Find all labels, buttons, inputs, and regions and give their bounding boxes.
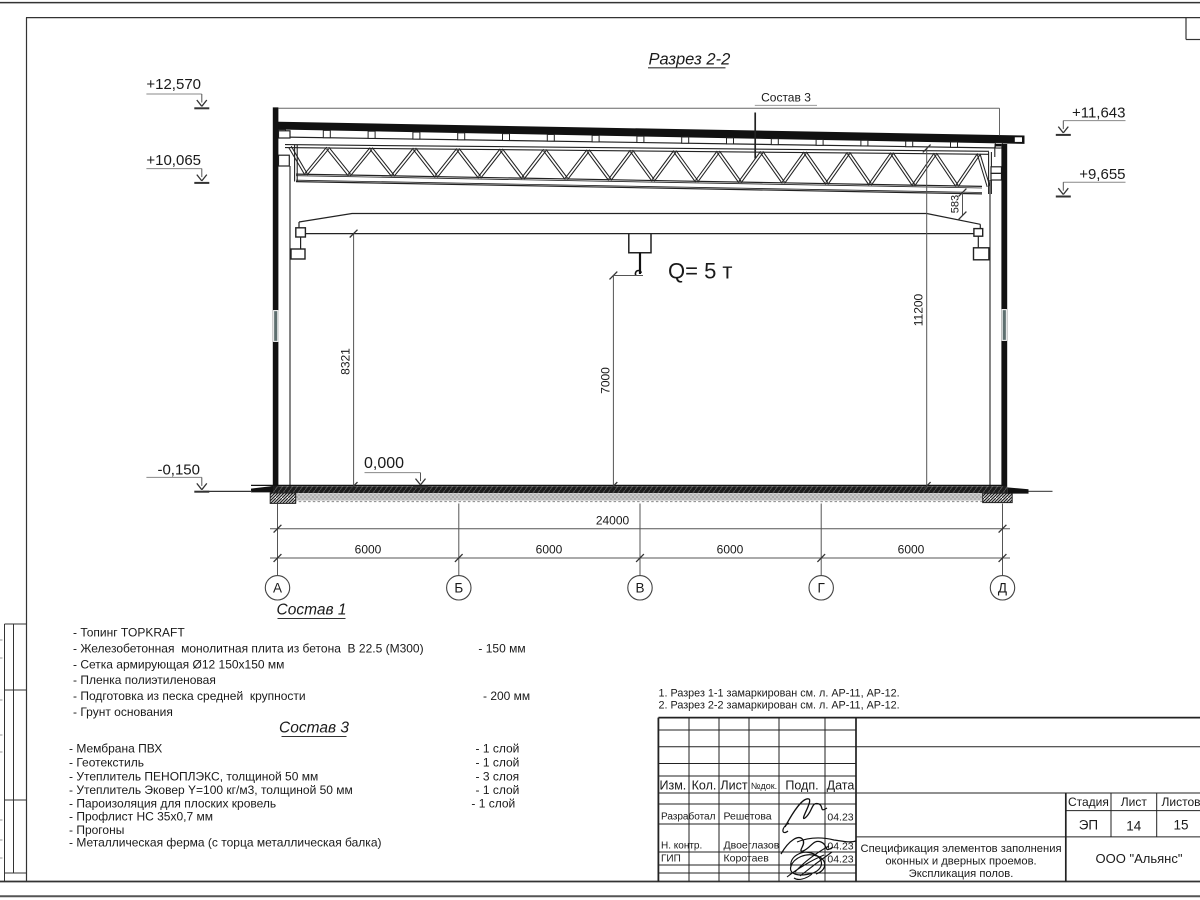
- svg-text:Q= 5 т: Q= 5 т: [668, 259, 733, 284]
- svg-text:- Профлист НС 35x0,7 мм: - Профлист НС 35x0,7 мм: [69, 810, 213, 824]
- svg-text:+9,655: +9,655: [1079, 166, 1125, 183]
- svg-text:0,000: 0,000: [364, 455, 404, 472]
- svg-text:А: А: [273, 580, 282, 595]
- svg-text:Коротаев: Коротаев: [724, 853, 770, 865]
- svg-text:6000: 6000: [717, 543, 744, 557]
- svg-text:ЭП: ЭП: [1079, 818, 1098, 833]
- svg-text:- Утеплитель ПЕНОПЛЭКС, толщин: - Утеплитель ПЕНОПЛЭКС, толщиной 50 мм: [69, 770, 318, 784]
- svg-text:Лист: Лист: [720, 779, 747, 793]
- svg-text:8321: 8321: [339, 348, 353, 375]
- svg-text:Н. контр.: Н. контр.: [661, 841, 702, 852]
- svg-text:- Подготовка из песка средней: - Подготовка из песка средней крупности: [73, 689, 306, 703]
- svg-text:ООО "Альянс": ООО "Альянс": [1096, 851, 1183, 866]
- svg-text:6000: 6000: [536, 543, 563, 557]
- svg-text:- Топинг TOPKRAFT: - Топинг TOPKRAFT: [73, 626, 185, 640]
- svg-text:Листов: Листов: [1162, 795, 1200, 809]
- svg-text:-0,150: -0,150: [157, 462, 200, 479]
- svg-text:Изм.: Изм.: [660, 779, 687, 793]
- svg-text:14: 14: [1126, 819, 1142, 834]
- svg-text:1. Разрез 1-1 замаркирован см.: 1. Разрез 1-1 замаркирован см. л. АР-11,…: [659, 688, 900, 700]
- svg-text:Двоеглазов: Двоеглазов: [724, 840, 780, 852]
- svg-text:- Пленка полиэтиленовая: - Пленка полиэтиленовая: [73, 673, 216, 687]
- svg-text:Лист: Лист: [1121, 795, 1148, 809]
- svg-text:Разработал: Разработал: [661, 811, 716, 823]
- svg-text:Дата: Дата: [827, 779, 855, 793]
- svg-text:- 1 слой: - 1 слой: [476, 783, 520, 797]
- svg-text:- Мембрана ПВХ: - Мембрана ПВХ: [69, 742, 162, 756]
- svg-text:Состав 3: Состав 3: [761, 91, 811, 105]
- svg-text:- Утеплитель Эковер Y=100 кг/м: - Утеплитель Эковер Y=100 кг/м3, толщино…: [69, 783, 353, 797]
- svg-text:6000: 6000: [355, 543, 382, 557]
- svg-text:+10,065: +10,065: [146, 152, 201, 169]
- svg-text:ГИП: ГИП: [661, 854, 681, 865]
- svg-text:Решетова: Решетова: [724, 811, 772, 823]
- svg-text:оконных и дверных проемов.: оконных и дверных проемов.: [885, 856, 1036, 868]
- svg-text:+11,643: +11,643: [1072, 105, 1126, 122]
- svg-text:- 1 слой: - 1 слой: [476, 742, 520, 756]
- svg-text:- Железобетонная монолитная п: - Железобетонная монолитная плита из бет…: [73, 641, 424, 655]
- svg-text:В: В: [635, 580, 644, 595]
- svg-text:6000: 6000: [898, 543, 925, 557]
- svg-text:Состав 3: Состав 3: [279, 720, 349, 737]
- svg-text:Кол.: Кол.: [692, 779, 717, 793]
- svg-text:24000: 24000: [596, 514, 630, 528]
- svg-text:Б: Б: [454, 580, 463, 595]
- svg-text:+12,570: +12,570: [146, 76, 201, 93]
- svg-text:7000: 7000: [599, 367, 613, 394]
- svg-text:- Грунт основания: - Грунт основания: [73, 705, 173, 719]
- svg-text:- 3 слоя: - 3 слоя: [476, 770, 520, 784]
- svg-text:- 1 слой: - 1 слой: [476, 756, 520, 770]
- svg-text:Разрез 2-2: Разрез 2-2: [649, 51, 731, 69]
- svg-text:- 200 мм: - 200 мм: [483, 689, 530, 703]
- svg-text:583: 583: [950, 195, 962, 213]
- svg-text:- 1 слой: - 1 слой: [471, 797, 515, 811]
- svg-text:2. Разрез 2-2 замаркирован см.: 2. Разрез 2-2 замаркирован см. л. АР-11,…: [659, 700, 900, 712]
- svg-text:Подп.: Подп.: [785, 779, 818, 793]
- svg-text:15: 15: [1173, 818, 1188, 833]
- svg-text:- Геотекстиль: - Геотекстиль: [69, 756, 144, 770]
- svg-text:11200: 11200: [912, 293, 926, 326]
- svg-text:Д: Д: [998, 580, 1007, 595]
- svg-text:Экспликация полов.: Экспликация полов.: [909, 868, 1014, 880]
- svg-text:- 150 мм: - 150 мм: [478, 641, 525, 655]
- svg-text:- Пароизоляция для плоских кро: - Пароизоляция для плоских кровель: [69, 797, 276, 811]
- svg-text:04.23: 04.23: [827, 812, 853, 824]
- svg-text:Г: Г: [818, 580, 826, 595]
- svg-text:Спецификация элементов заполне: Спецификация элементов заполнения: [860, 843, 1061, 855]
- svg-text:Стадия: Стадия: [1068, 795, 1109, 809]
- svg-text:Состав 1: Состав 1: [277, 602, 347, 619]
- svg-text:04.23: 04.23: [827, 854, 853, 866]
- svg-text:- Металлическая ферма (с торца: - Металлическая ферма (с торца металличе…: [69, 836, 382, 850]
- svg-text:№док.: №док.: [751, 781, 777, 791]
- svg-text:- Сетка армирующая Ø12 150x150: - Сетка армирующая Ø12 150x150 мм: [73, 657, 284, 671]
